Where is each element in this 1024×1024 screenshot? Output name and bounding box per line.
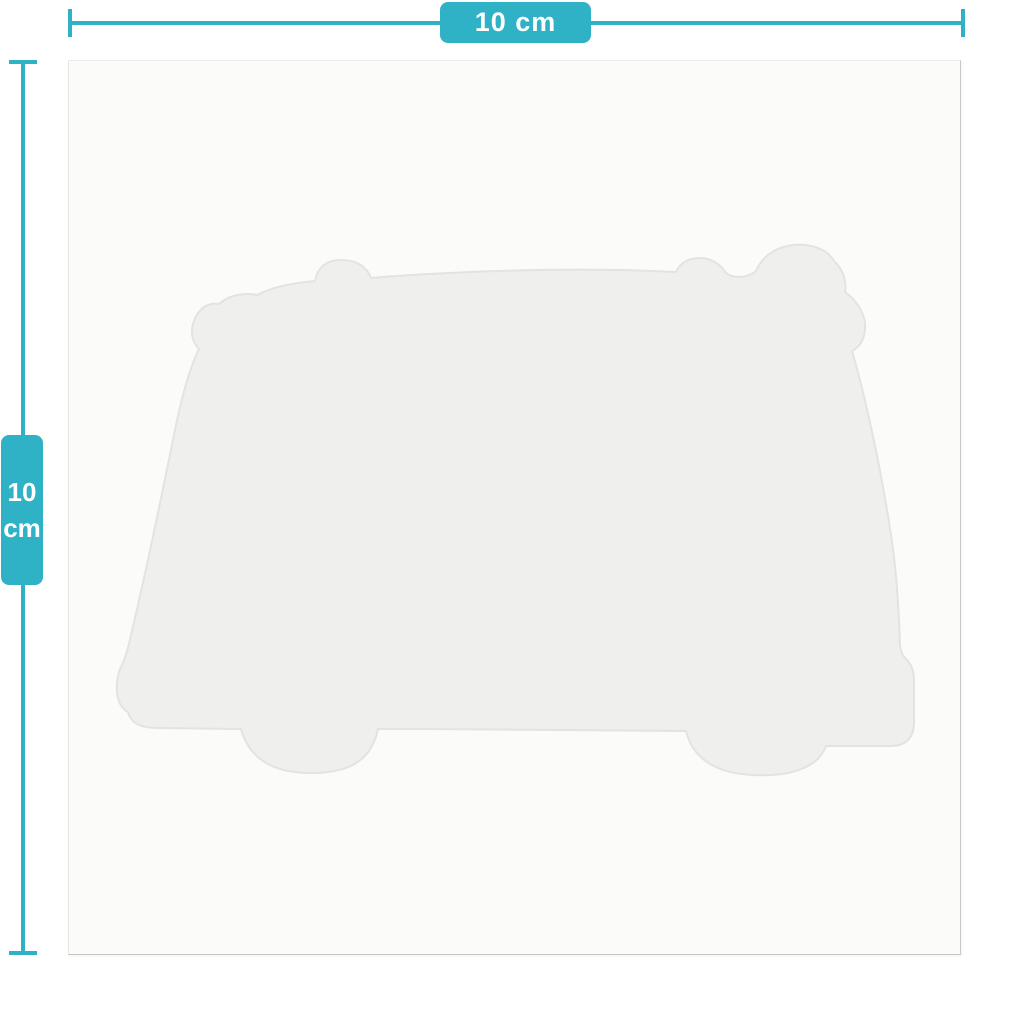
width-dimension-badge: 10 cm [440, 2, 591, 43]
width-dimension-right-cap [961, 9, 965, 37]
height-dimension-value: 10 [8, 474, 37, 510]
product-dimension-mockup: 10 cm 10 cm [0, 0, 1024, 1024]
width-dimension-left-cap [68, 9, 72, 37]
height-dimension-top-cap [9, 60, 37, 64]
height-dimension-badge: 10 cm [1, 435, 43, 585]
height-dimension-unit: cm [3, 510, 41, 546]
sticker-sheet [68, 60, 961, 955]
width-dimension-label: 10 cm [475, 7, 557, 38]
height-dimension-bottom-cap [9, 951, 37, 955]
